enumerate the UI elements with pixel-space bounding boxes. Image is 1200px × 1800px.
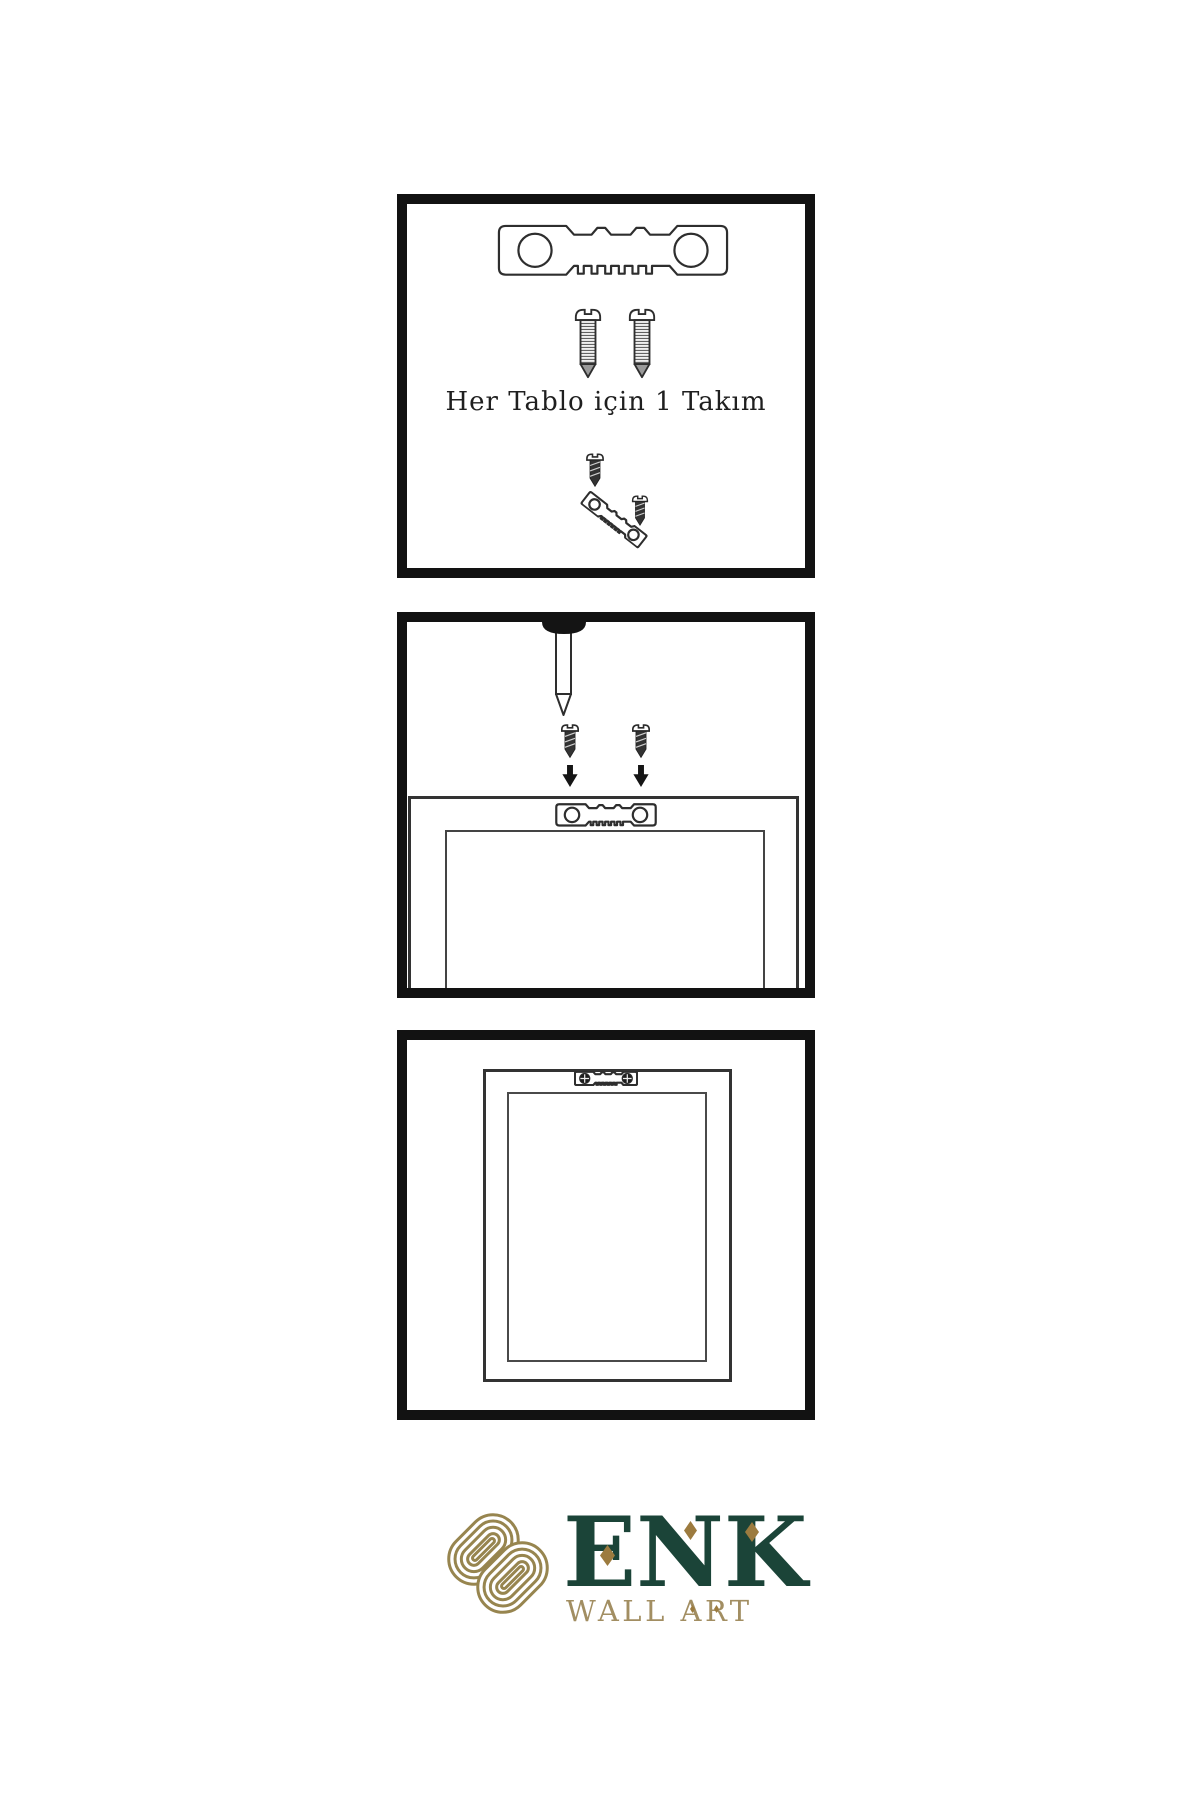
knot-logo-icon — [438, 1502, 558, 1625]
dark-screw-icon — [560, 722, 580, 760]
frame-back-inner-edge — [445, 830, 765, 988]
step-1-panel: Her Tablo için 1 Takım — [397, 194, 815, 578]
screw-icon — [573, 307, 603, 380]
step-3-panel — [397, 1030, 815, 1420]
screw-icon — [627, 307, 657, 380]
crosshead-screw-icon — [574, 1071, 638, 1086]
arrow-down-icon — [632, 765, 650, 787]
dark-screw-icon — [631, 722, 651, 760]
step-2-panel — [397, 612, 815, 998]
brand-tagline: WALL ART — [566, 1596, 786, 1626]
brand-name: ENK — [563, 1509, 803, 1597]
kit-caption: Her Tablo için 1 Takım — [407, 387, 805, 417]
frame-front-inner-edge — [507, 1092, 707, 1362]
sawtooth-hanger-icon — [496, 223, 730, 278]
dark-screw-icon — [631, 494, 649, 527]
sawtooth-hanger-icon — [555, 803, 657, 827]
arrow-down-icon — [561, 765, 579, 787]
instruction-sheet: Her Tablo için 1 Takım — [0, 0, 1200, 1800]
nail-icon — [542, 620, 586, 718]
dark-screw-icon — [585, 452, 605, 488]
